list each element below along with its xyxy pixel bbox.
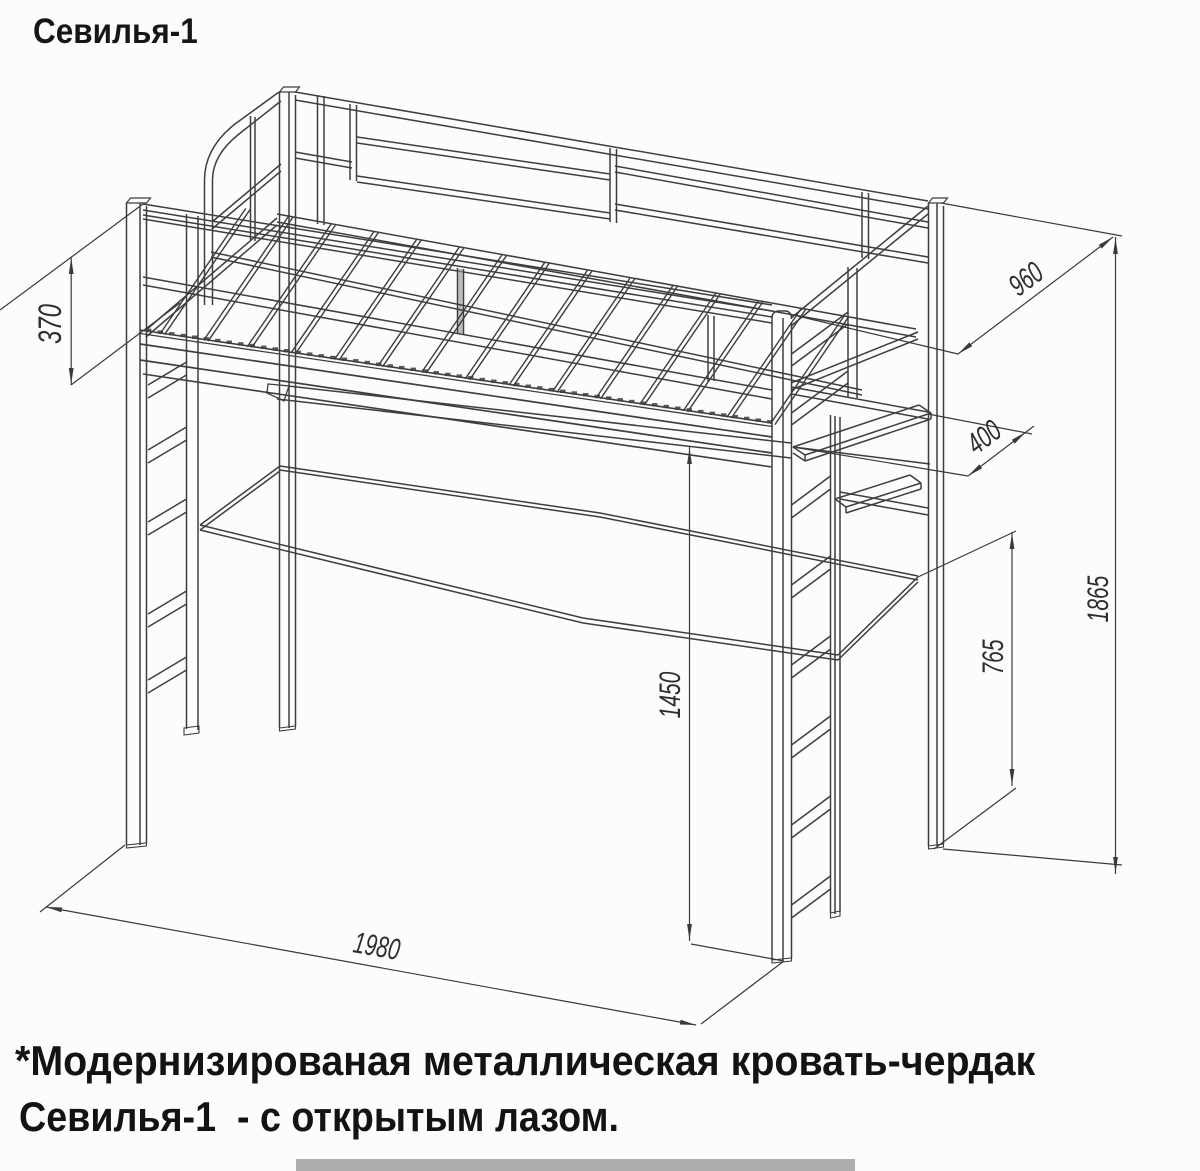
svg-text:765: 765 [978, 639, 1010, 675]
svg-text:960: 960 [1003, 256, 1050, 303]
svg-text:400: 400 [961, 414, 1008, 461]
svg-text:1450: 1450 [655, 671, 687, 718]
svg-text:1980: 1980 [351, 927, 403, 967]
svg-text:370: 370 [32, 304, 68, 344]
svg-text:1865: 1865 [1083, 575, 1115, 622]
